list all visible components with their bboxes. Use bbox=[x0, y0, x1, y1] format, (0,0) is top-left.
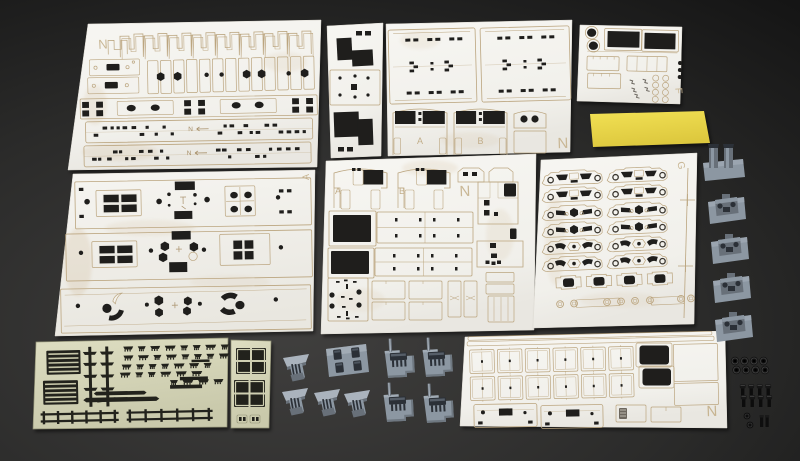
svg-text:A: A bbox=[335, 186, 341, 196]
svg-text:F: F bbox=[672, 87, 683, 94]
svg-text:N: N bbox=[187, 150, 192, 157]
svg-text:N: N bbox=[459, 183, 470, 200]
svg-text:A: A bbox=[301, 174, 311, 180]
svg-text:B: B bbox=[399, 186, 405, 196]
svg-text:B: B bbox=[477, 136, 483, 146]
svg-text:N: N bbox=[98, 36, 108, 51]
svg-text:N: N bbox=[557, 135, 568, 152]
svg-text:N: N bbox=[706, 403, 717, 420]
svg-text:A: A bbox=[417, 136, 423, 146]
svg-text:N: N bbox=[188, 126, 193, 133]
